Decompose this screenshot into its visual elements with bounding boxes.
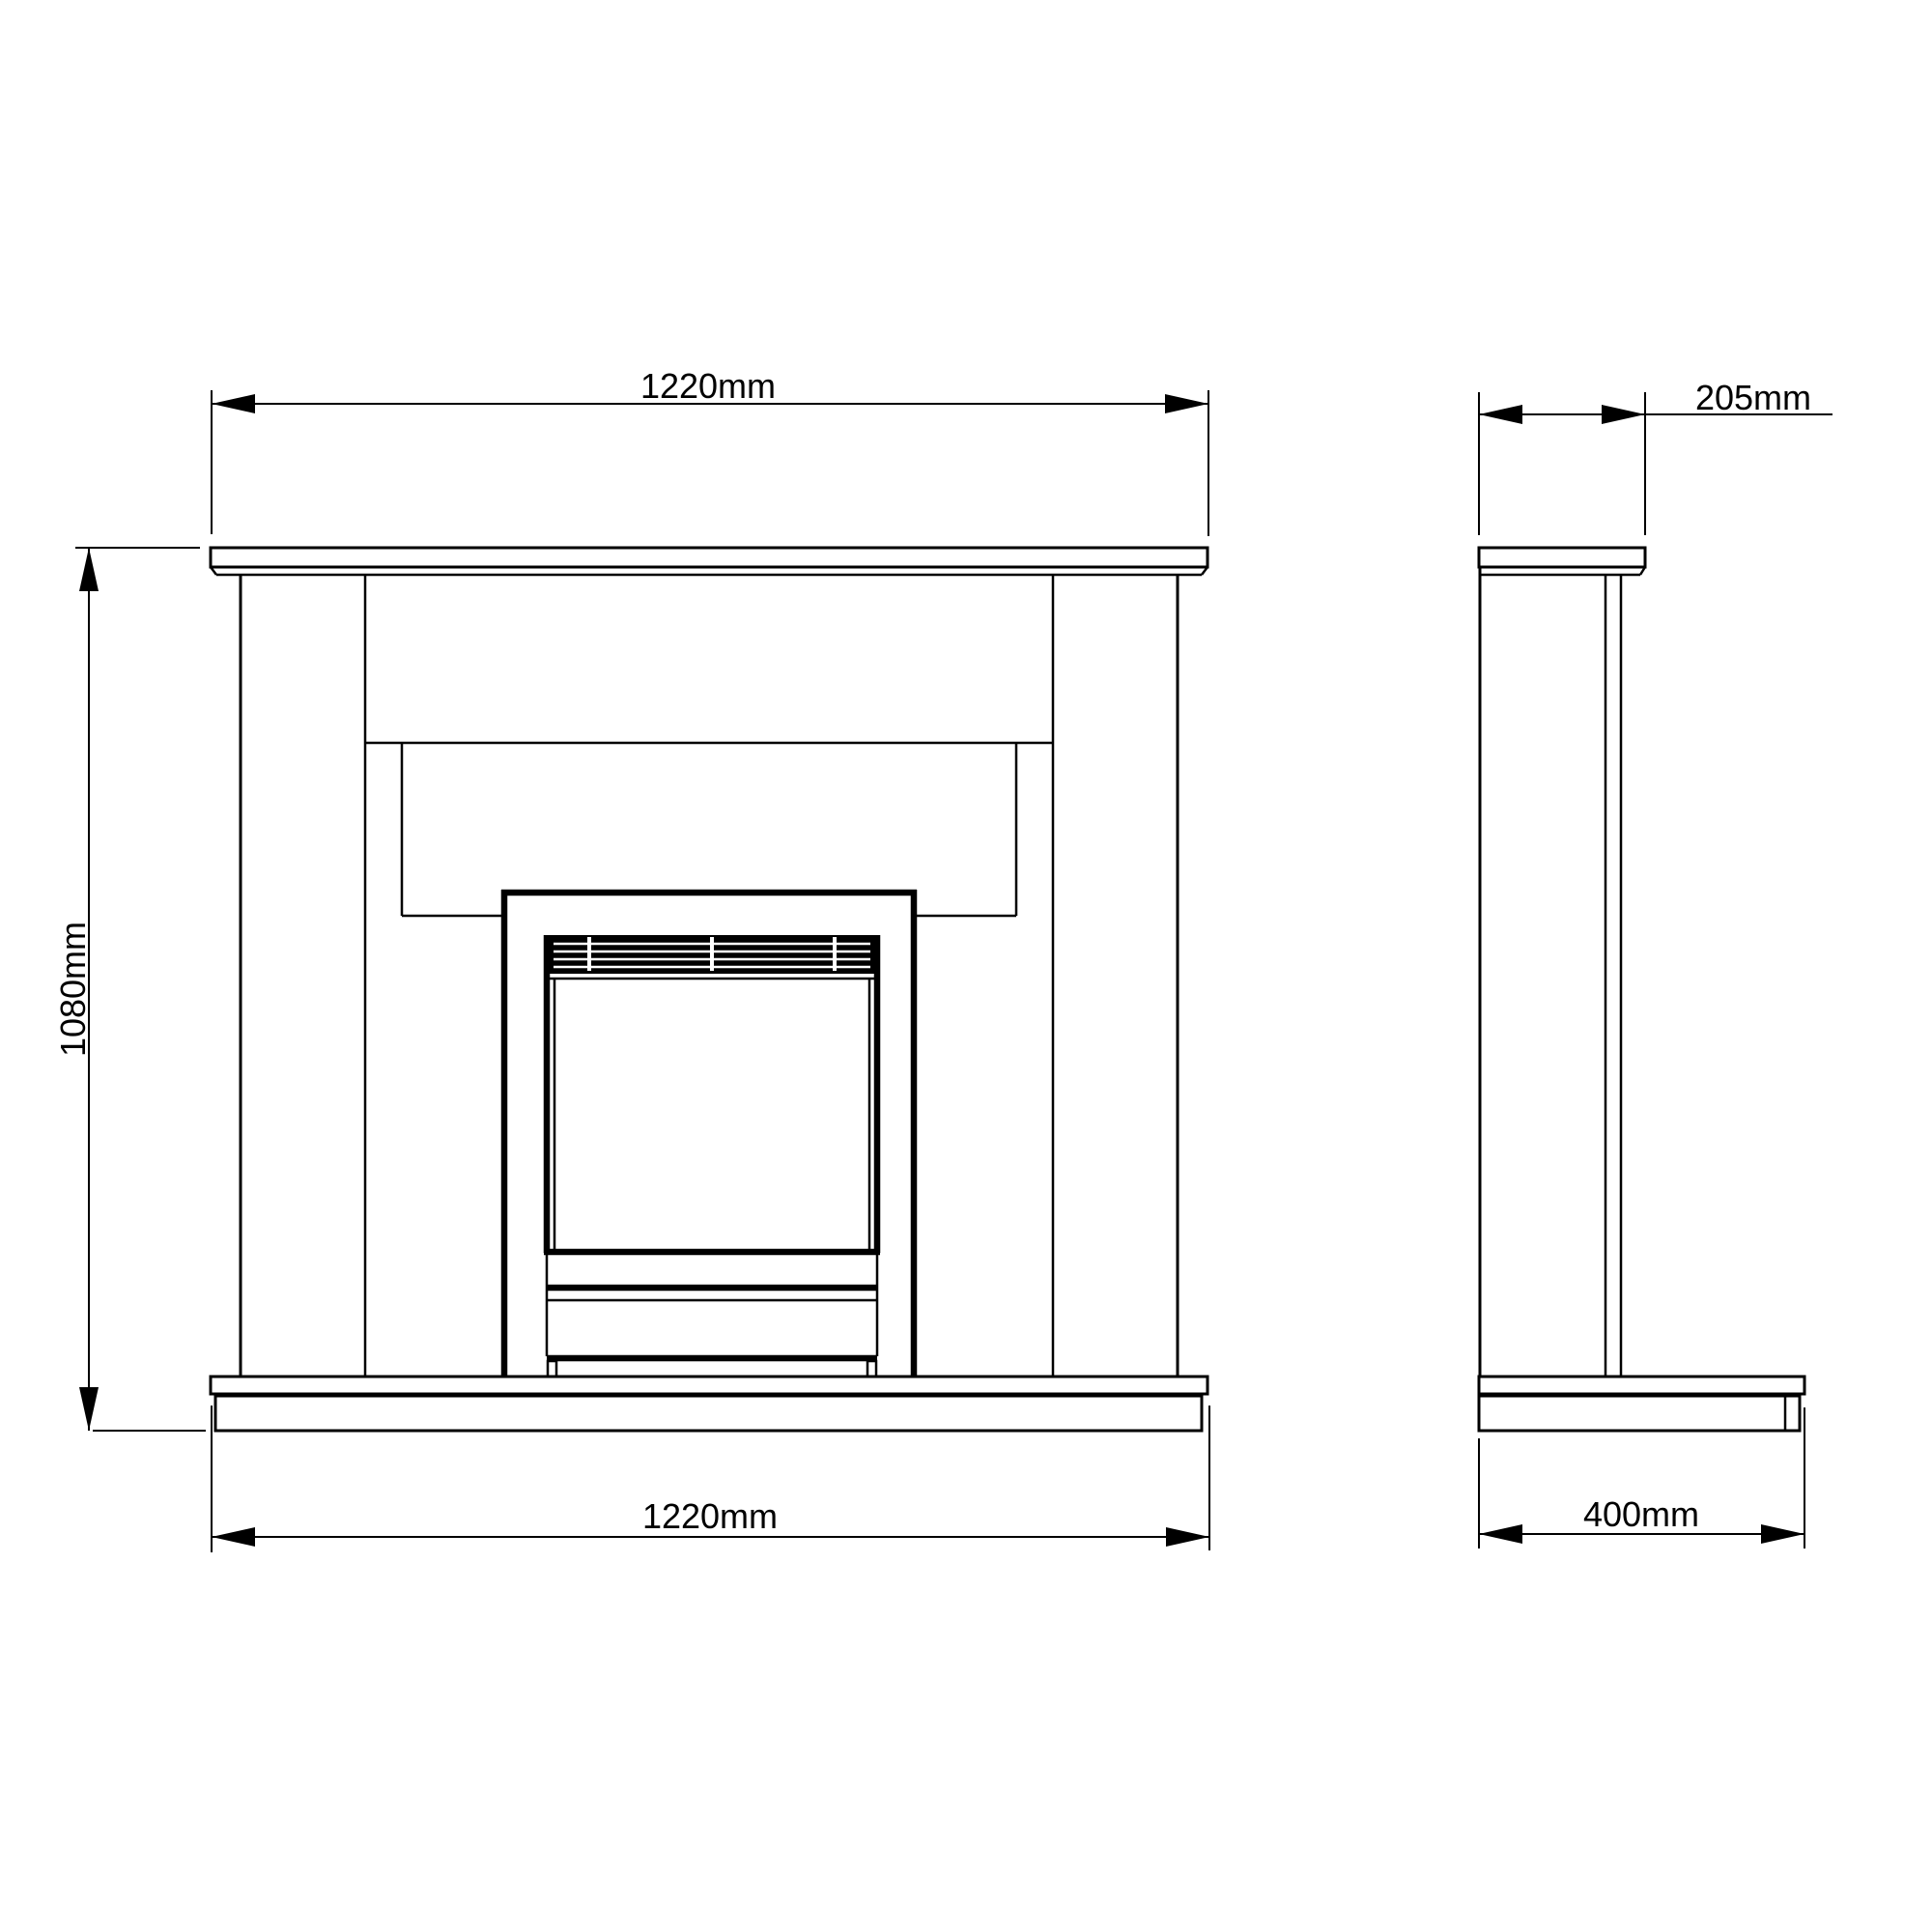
front-height-label: 1080mm (53, 922, 93, 1057)
arrow-up-icon (79, 548, 99, 591)
left-pillar (241, 575, 365, 1377)
arrow-right-icon (1761, 1524, 1804, 1544)
dimension-front-bottom-width: 1220mm (212, 1406, 1209, 1552)
arrow-right-icon (1602, 405, 1645, 424)
right-pillar (1053, 575, 1178, 1377)
front-top-width-label: 1220mm (640, 366, 776, 406)
fire-insert (544, 935, 880, 1377)
dimension-front-top-width: 1220mm (212, 366, 1208, 536)
insert-grille (544, 935, 880, 979)
arrow-left-icon (1479, 1524, 1522, 1544)
front-view (211, 548, 1207, 1431)
arrow-left-icon (212, 394, 255, 413)
arrow-right-icon (1165, 394, 1208, 413)
side-view (1479, 548, 1804, 1431)
side-hearth (1479, 1377, 1804, 1431)
side-shelf (1479, 548, 1645, 575)
side-bottom-depth-label: 400mm (1583, 1494, 1699, 1534)
arrow-right-icon (1166, 1527, 1209, 1547)
side-column (1480, 567, 1621, 1377)
dimension-side-bottom-depth: 400mm (1479, 1407, 1804, 1548)
drawing-canvas: 1220mm 1080mm 1220mm 205mm 400mm (0, 0, 1932, 1932)
mantel-shelf (211, 548, 1207, 575)
side-top-depth-label: 205mm (1695, 378, 1811, 417)
insert-fender (544, 1252, 880, 1377)
arrow-left-icon (212, 1527, 255, 1547)
dimension-side-top-depth: 205mm (1479, 378, 1833, 535)
insert-firebox (547, 935, 877, 1253)
front-hearth (211, 1377, 1207, 1431)
arrow-down-icon (79, 1387, 99, 1431)
arrow-left-icon (1479, 405, 1522, 424)
front-bottom-width-label: 1220mm (642, 1496, 778, 1536)
dimension-front-height: 1080mm (53, 548, 206, 1431)
fireplace-dimension-drawing: 1220mm 1080mm 1220mm 205mm 400mm (0, 0, 1932, 1932)
